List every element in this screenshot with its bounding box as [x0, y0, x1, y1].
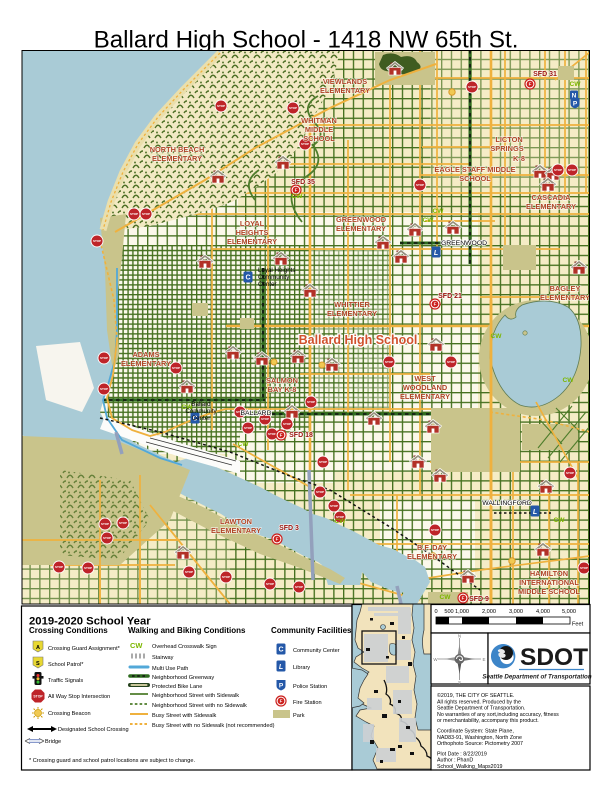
svg-text:CW: CW	[563, 377, 575, 384]
svg-text:SFD 35: SFD 35	[291, 179, 315, 186]
svg-text:N: N	[458, 634, 461, 639]
svg-text:STOP: STOP	[33, 695, 43, 699]
svg-text:CW: CW	[491, 333, 503, 340]
svg-text:BALLARD: BALLARD	[241, 410, 272, 417]
svg-text:Bridge: Bridge	[45, 739, 61, 745]
svg-text:or merchantability, accompany: or merchantability, accompany this produ…	[437, 718, 539, 724]
svg-text:BAY K-8: BAY K-8	[268, 385, 297, 394]
svg-text:ELEMENTARY: ELEMENTARY	[121, 359, 171, 368]
svg-text:CW: CW	[238, 441, 250, 448]
svg-text:WOODLAND: WOODLAND	[403, 383, 448, 392]
svg-text:Designated School Crossing: Designated School Crossing	[58, 727, 129, 733]
svg-text:CW: CW	[433, 208, 445, 215]
svg-text:Crossing Beacon: Crossing Beacon	[48, 711, 91, 717]
svg-text:Crossing Conditions: Crossing Conditions	[29, 626, 108, 635]
svg-text:4,000: 4,000	[536, 609, 550, 615]
svg-text:INTERNATIONAL: INTERNATIONAL	[519, 578, 579, 587]
svg-text:NAD83-91, Washington, North Zo: NAD83-91, Washington, North Zone	[437, 735, 522, 741]
svg-text:SPRINGS: SPRINGS	[490, 144, 523, 153]
svg-text:ELEMENTARY: ELEMENTARY	[526, 202, 576, 211]
svg-text:Community Center: Community Center	[293, 648, 340, 654]
svg-text:2,000: 2,000	[482, 609, 496, 615]
svg-text:Loyal Heights: Loyal Heights	[258, 267, 296, 274]
svg-text:1,000: 1,000	[455, 609, 469, 615]
svg-text:S: S	[458, 680, 461, 685]
svg-text:Coordinate System: State Plane: Coordinate System: State Plane,	[437, 729, 514, 735]
svg-text:Plot Date : 8/22/2019: Plot Date : 8/22/2019	[437, 751, 487, 757]
svg-text:K-8: K-8	[513, 154, 525, 163]
svg-text:LICTON: LICTON	[495, 135, 522, 144]
svg-text:5,000: 5,000	[562, 609, 576, 615]
svg-text:LAWTON: LAWTON	[220, 517, 252, 526]
svg-text:CW: CW	[570, 81, 582, 88]
svg-text:MIDDLE: MIDDLE	[305, 125, 333, 134]
svg-text:SDOT: SDOT	[520, 644, 588, 671]
svg-text:Seattle Department of Transpor: Seattle Department of Transportation.	[437, 706, 525, 712]
svg-text:BAGLEY: BAGLEY	[550, 284, 581, 293]
svg-text:CW: CW	[554, 517, 566, 524]
svg-text:SFD 31: SFD 31	[533, 71, 557, 78]
svg-text:SFD 3: SFD 3	[279, 525, 299, 532]
svg-text:Orthophoto Source: Pictometry: Orthophoto Source: Pictometry 2007	[437, 741, 523, 747]
svg-text:NORTH BEACH: NORTH BEACH	[150, 145, 205, 154]
svg-text:SFD 21: SFD 21	[438, 293, 462, 300]
svg-text:ELEMENTARY: ELEMENTARY	[407, 552, 457, 561]
svg-text:Community Facilities: Community Facilities	[271, 626, 352, 635]
svg-text:Community: Community	[258, 274, 290, 281]
svg-text:CW: CW	[130, 641, 143, 650]
svg-text:MIDDLE SCHOOL: MIDDLE SCHOOL	[518, 587, 580, 596]
svg-text:N: N	[572, 92, 577, 99]
svg-text:Walking and Biking Conditions: Walking and Biking Conditions	[128, 626, 246, 635]
svg-text:Crossing Guard Assignment*: Crossing Guard Assignment*	[48, 646, 121, 652]
svg-text:ELEMENTARY: ELEMENTARY	[320, 86, 370, 95]
svg-text:Center: Center	[192, 415, 211, 422]
svg-text:500: 500	[444, 609, 453, 615]
svg-text:SALMON: SALMON	[266, 376, 298, 385]
svg-text:Ballard High School: Ballard High School	[299, 333, 418, 347]
svg-text:ELEMENTARY: ELEMENTARY	[336, 224, 386, 233]
svg-text:Park: Park	[293, 713, 305, 719]
svg-text:Library: Library	[293, 665, 310, 671]
svg-text:* Crossing guard and school pa: * Crossing guard and school patrol locat…	[29, 758, 195, 764]
svg-text:ADAMS: ADAMS	[132, 350, 159, 359]
svg-text:GREENWOOD: GREENWOOD	[441, 240, 487, 247]
svg-text:ELEMENTARY: ELEMENTARY	[400, 392, 450, 401]
svg-text:ELEMENTARY: ELEMENTARY	[227, 237, 277, 246]
svg-text:No warranties of any sort,incl: No warranties of any sort,including accu…	[437, 712, 559, 718]
svg-text:Neighborhood Street with no Si: Neighborhood Street with no Sidewalk	[152, 703, 247, 709]
svg-text:CW: CW	[440, 594, 452, 601]
svg-text:©2019, THE CITY OF SEATTLE.: ©2019, THE CITY OF SEATTLE.	[437, 692, 515, 699]
svg-text:VIEWLANDS: VIEWLANDS	[323, 77, 367, 86]
svg-text:WEST: WEST	[414, 374, 436, 383]
svg-text:Busy Street with no Sidewalk (: Busy Street with no Sidewalk (not recomm…	[152, 723, 275, 729]
svg-text:School Patrol*: School Patrol*	[48, 662, 84, 668]
svg-text:S: S	[36, 661, 40, 667]
svg-text:Protected Bike Lane: Protected Bike Lane	[152, 684, 202, 690]
svg-text:ELEMENTARY: ELEMENTARY	[327, 309, 377, 318]
svg-text:Fire Station: Fire Station	[293, 700, 322, 706]
svg-text:CW: CW	[423, 217, 435, 224]
svg-text:Center: Center	[258, 281, 277, 288]
svg-text:Neighborhood Greenway: Neighborhood Greenway	[152, 675, 214, 681]
svg-text:Ballard: Ballard	[191, 401, 211, 408]
svg-text:WALLINGFORD: WALLINGFORD	[482, 500, 532, 507]
svg-text:WHITTIER: WHITTIER	[334, 300, 370, 309]
svg-text:3,000: 3,000	[509, 609, 523, 615]
svg-text:LOYAL: LOYAL	[240, 219, 265, 228]
svg-text:Ballard High School - 1418 NW: Ballard High School - 1418 NW 65th St.	[94, 27, 519, 54]
svg-text:Police Station: Police Station	[293, 684, 327, 690]
svg-text:SCHOOL: SCHOOL	[303, 134, 335, 143]
svg-text:CW: CW	[335, 518, 347, 525]
svg-text:Multi Use Path: Multi Use Path	[152, 666, 188, 672]
svg-text:HAMILTON: HAMILTON	[530, 569, 568, 578]
svg-text:Neighborhood Street with Sidew: Neighborhood Street with Sidewalk	[152, 693, 239, 699]
svg-text:Seattle Department of Transpor: Seattle Department of Transportation	[482, 674, 591, 681]
svg-text:HEIGHTS: HEIGHTS	[236, 228, 269, 237]
svg-text:CW: CW	[292, 193, 304, 200]
svg-text:Feet: Feet	[572, 622, 584, 628]
svg-text:A: A	[36, 645, 40, 651]
svg-text:EAGLE STAFF MIDDLE: EAGLE STAFF MIDDLE	[434, 165, 515, 174]
svg-text:ELEMENTARY: ELEMENTARY	[540, 293, 590, 302]
svg-text:SFD 18: SFD 18	[289, 432, 313, 439]
svg-text:Community: Community	[185, 408, 217, 415]
svg-text:Stairway: Stairway	[152, 655, 174, 661]
svg-text:All rights reserved. Produced: All rights reserved. Produced by the	[437, 699, 521, 705]
svg-text:GREENWOOD: GREENWOOD	[336, 215, 387, 224]
svg-text:ELEMENTARY: ELEMENTARY	[152, 154, 202, 163]
svg-text:Overhead Crosswalk Sign: Overhead Crosswalk Sign	[152, 644, 217, 650]
svg-text:Author : PhanD: Author : PhanD	[437, 758, 473, 764]
svg-text:School_Walking_Maps2019: School_Walking_Maps2019	[437, 764, 503, 770]
svg-text:B.F. DAY: B.F. DAY	[417, 543, 447, 552]
svg-text:All Way Stop Intersection: All Way Stop Intersection	[48, 694, 110, 700]
svg-text:CASCADIA: CASCADIA	[531, 193, 571, 202]
svg-text:ELEMENTARY: ELEMENTARY	[211, 526, 261, 535]
svg-text:0: 0	[434, 609, 437, 615]
svg-text:WHITMAN: WHITMAN	[301, 116, 337, 125]
svg-text:Busy Street with Sidewalk: Busy Street with Sidewalk	[152, 713, 217, 719]
svg-text:E: E	[482, 657, 485, 662]
svg-text:SFD 9: SFD 9	[469, 596, 489, 603]
svg-text:SCHOOL: SCHOOL	[459, 174, 491, 183]
svg-text:Traffic Signals: Traffic Signals	[48, 678, 83, 684]
